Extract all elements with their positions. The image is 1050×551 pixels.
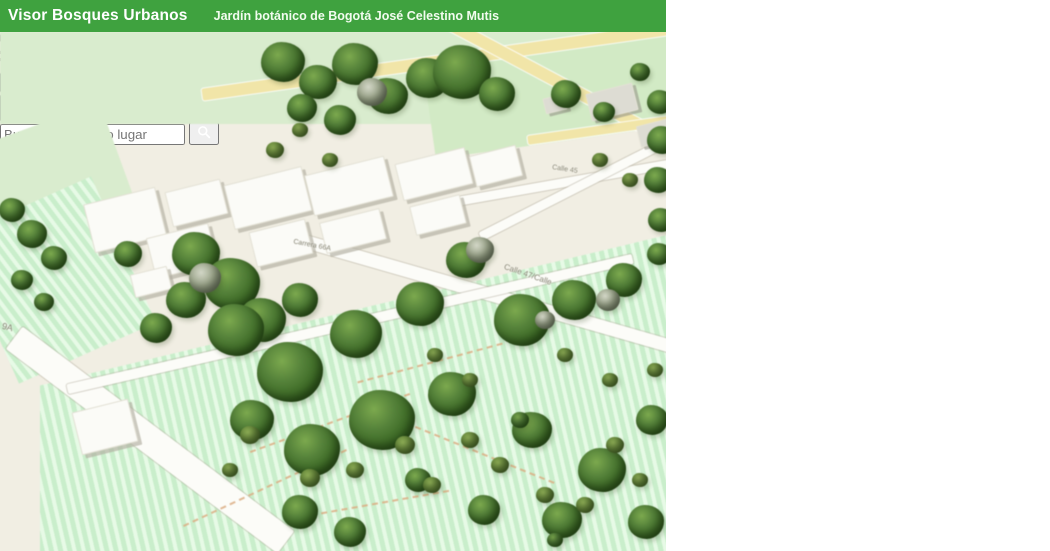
tree-3d: [479, 77, 515, 110]
tree-3d: [596, 289, 620, 311]
bush: [592, 153, 608, 168]
street-label: Calle 45: [552, 164, 578, 175]
tree-3d: [334, 517, 366, 546]
tree-3d: [357, 78, 387, 106]
bush: [266, 142, 284, 159]
tree-3d: [17, 220, 47, 248]
tree-3d: [648, 208, 666, 232]
tree-3d: [257, 342, 323, 403]
tree-trunk-small: [433, 45, 437, 61]
tree-3d: [468, 495, 500, 524]
bush: [322, 153, 338, 168]
tree-3d: [282, 283, 318, 316]
tree-trunk-small: [542, 502, 546, 513]
tree-3d: [282, 495, 318, 528]
tree-3d: [647, 243, 666, 265]
tree-3d: [114, 241, 142, 267]
tree-3d: [636, 405, 666, 434]
page-title: Jardín botánico de Bogotá José Celestino…: [214, 9, 499, 23]
tree-3d: [324, 105, 356, 134]
tree-3d: [284, 424, 340, 476]
tree-3d: [41, 246, 67, 270]
tree-trunk-small: [494, 294, 498, 309]
tree-trunk-small: [349, 390, 353, 408]
tree-3d: [593, 102, 615, 122]
tree-3d: [466, 237, 494, 263]
app-header: Visor Bosques Urbanos Jardín botánico de…: [0, 0, 666, 32]
tree-trunk-small: [230, 400, 234, 412]
map-canvas: Calle 45Calle 47/CalleCarrera 66A9A: [0, 32, 666, 551]
tree-3d: [287, 94, 317, 122]
building-3d: [304, 156, 394, 217]
bush: [292, 123, 308, 138]
tree-3d: [11, 270, 33, 290]
tree-3d: [208, 304, 264, 356]
building-3d: [409, 194, 467, 236]
tree-3d: [330, 310, 382, 358]
tree-3d: [396, 282, 444, 326]
tree-3d: [189, 263, 221, 292]
tree-trunk-small: [446, 242, 450, 253]
tree-trunk-small: [428, 372, 432, 385]
building-3d: [164, 179, 228, 228]
tree-trunk-small: [330, 310, 334, 324]
tree-trunk-small: [261, 42, 265, 54]
tree-trunk-small: [172, 232, 176, 245]
tree-trunk-small: [332, 43, 336, 56]
map-view[interactable]: Calle 45Calle 47/CalleCarrera 66A9A: [0, 32, 666, 551]
tree-3d: [261, 42, 305, 82]
tree-trunk-small: [208, 304, 212, 319]
tree-trunk-small: [406, 58, 410, 70]
tree-trunk-small: [552, 280, 556, 292]
tree-trunk-small: [166, 282, 170, 293]
map-app-panel: Visor Bosques Urbanos Jardín botánico de…: [0, 0, 666, 551]
building-3d: [394, 147, 473, 201]
screenshot-root: Visor Bosques Urbanos Jardín botánico de…: [0, 0, 1050, 551]
bush: [622, 173, 638, 188]
tree-3d: [551, 80, 581, 108]
tree-3d: [552, 280, 596, 320]
tree-trunk-small: [578, 448, 582, 461]
tree-3d: [578, 448, 626, 492]
app-title: Visor Bosques Urbanos: [8, 7, 188, 25]
tree-3d: [647, 90, 666, 114]
tree-3d: [628, 505, 664, 538]
tree-3d: [644, 167, 666, 193]
tree-trunk-small: [396, 282, 400, 295]
tree-trunk-small: [257, 342, 261, 360]
tree-trunk-small: [284, 424, 288, 439]
tree-3d: [140, 313, 172, 342]
